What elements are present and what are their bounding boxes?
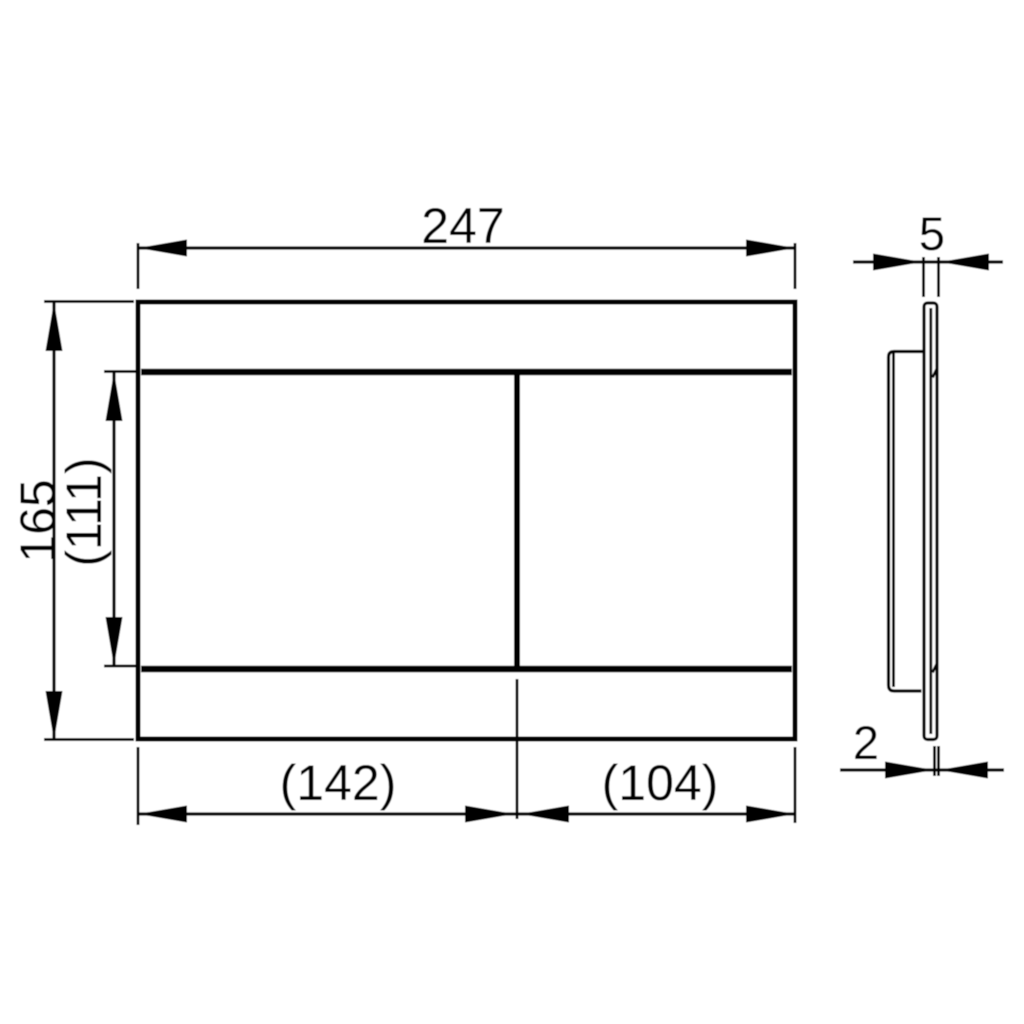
svg-text:5: 5 [919,207,945,260]
svg-text:2: 2 [853,716,879,769]
svg-text:(142): (142) [280,755,397,811]
svg-text:(104): (104) [602,755,719,811]
svg-text:247: 247 [421,198,504,254]
svg-text:(111): (111) [56,457,112,566]
